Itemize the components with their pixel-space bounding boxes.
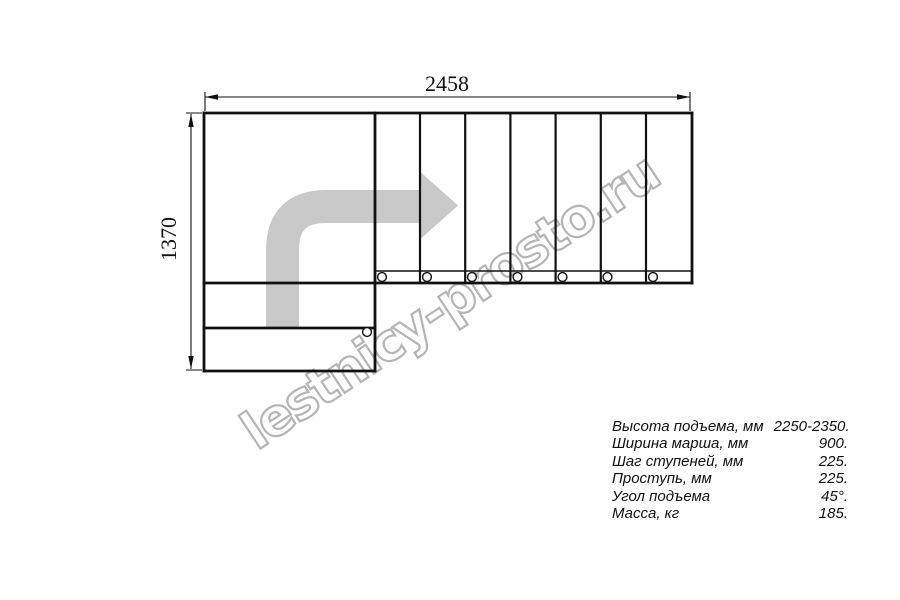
spec-row-step-pitch: Шаг ступеней, мм 225.	[612, 453, 848, 470]
spec-label: Высота подъема, мм	[612, 418, 764, 435]
spec-value: 225.	[819, 470, 848, 487]
spec-label: Проступь, мм	[612, 470, 712, 487]
dimension-arrow-left-icon	[205, 94, 218, 99]
baluster-circle	[649, 273, 658, 282]
spec-label: Масса, кг	[612, 505, 679, 522]
spec-row-tread: Проступь, мм 225.	[612, 470, 848, 487]
spec-row-mass: Масса, кг 185.	[612, 505, 848, 522]
dimension-arrow-right-icon	[677, 94, 690, 99]
spec-value: 225.	[819, 453, 848, 470]
height-dimension-label: 1370	[156, 217, 181, 261]
direction-arrow-head-icon	[421, 173, 458, 239]
spec-label: Ширина марша, мм	[612, 435, 748, 452]
staircase-drawing-page: lestnicy-prosto.ru	[0, 0, 900, 600]
baluster-circle	[423, 273, 432, 282]
spec-row-rise-angle: Угол подъема 45°.	[612, 488, 848, 505]
width-dimension: 2458	[205, 71, 690, 111]
spec-label: Угол подъема	[612, 488, 710, 505]
baluster-circle	[363, 328, 372, 337]
spec-table: Высота подъема, мм 2250-2350. Ширина мар…	[612, 418, 848, 522]
dimension-arrow-down-icon	[188, 356, 193, 369]
spec-value: 900.	[819, 435, 848, 452]
spec-row-rise-height: Высота подъема, мм 2250-2350.	[612, 418, 848, 435]
spec-row-flight-width: Ширина марша, мм 900.	[612, 435, 848, 452]
baluster-circle	[378, 273, 387, 282]
height-dimension-lines	[186, 113, 202, 370]
baluster-circle	[513, 273, 522, 282]
baluster-circle	[558, 273, 567, 282]
spec-value: 185.	[819, 505, 848, 522]
width-dimension-label: 2458	[425, 71, 469, 96]
dimension-arrow-up-icon	[188, 114, 193, 127]
height-dimension: 1370	[156, 113, 202, 370]
spec-label: Шаг ступеней, мм	[612, 453, 743, 470]
spec-value: 2250-2350.	[774, 418, 850, 435]
spec-value: 45°.	[821, 488, 848, 505]
baluster-circle	[468, 273, 477, 282]
baluster-circle	[603, 273, 612, 282]
